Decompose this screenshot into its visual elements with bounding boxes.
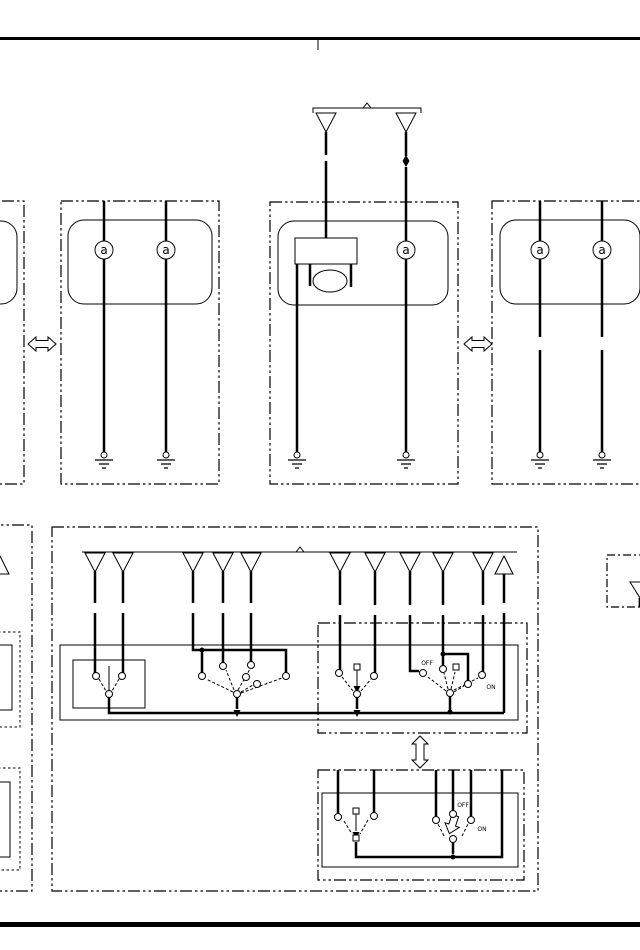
switch-contact: [220, 663, 227, 670]
switch-contact: [371, 673, 378, 680]
bulb-icon: [397, 241, 415, 259]
harness-direction-arrow-icon: [28, 337, 56, 351]
inner-switch-box-upper: [318, 623, 527, 733]
left-partial-lamp-body: [0, 221, 17, 304]
ground-icon: [288, 452, 306, 468]
connector-pin-icon: [330, 553, 350, 572]
power-feed-bracket: [313, 103, 421, 113]
upper-switch-on-label: ON: [486, 684, 495, 691]
connector-pin-icon: [213, 553, 233, 572]
bracket-line: [313, 103, 421, 113]
connector-pin-icon: [241, 553, 261, 572]
connector-pin-icon: [183, 553, 203, 572]
switch-contact: [106, 691, 113, 698]
switch-contact: [119, 673, 126, 680]
switch-contact-square: [354, 664, 360, 670]
switch-contact: [371, 813, 378, 820]
switch-contact: [248, 662, 255, 669]
switch-contact: [354, 691, 361, 698]
top-border-line: [0, 37, 640, 40]
ground-icon: [531, 452, 549, 468]
connector-pin-icon: [433, 553, 453, 572]
switch-levers: [109, 666, 357, 831]
upper-switch-off-label: OFF: [421, 660, 433, 667]
lower-left-partial-box: [0, 525, 32, 891]
switch-contact: [465, 681, 472, 688]
switch-contact: [450, 811, 457, 818]
connector-pin-icon: [113, 553, 133, 572]
lower-wires: [95, 571, 640, 857]
wire-junction-dot: [441, 652, 446, 657]
switch-contact: [234, 691, 241, 698]
page-borders: [0, 37, 640, 927]
ground-icon: [397, 452, 415, 468]
bulb-icon: [593, 241, 611, 259]
combination-switch-outer-box: [52, 527, 538, 891]
bulb-icon: [95, 241, 113, 259]
switch-contact: [243, 674, 250, 681]
bulb-holder-block: [295, 238, 357, 264]
switch-contact: [450, 836, 457, 843]
switch-contact-square: [453, 664, 459, 670]
bulb-icon: [531, 241, 549, 259]
right-partial-connector-box: [607, 555, 640, 607]
inner-switch-box-lower: [318, 770, 524, 880]
left-partial-lamp-box: [0, 201, 24, 484]
right-lamp-unit-body: [500, 220, 640, 304]
left-lamp-unit-box: [61, 201, 219, 484]
switch-contact: [254, 681, 261, 688]
right-lamp-unit-box: [492, 201, 640, 484]
connector-pin-partial-icon: [630, 582, 640, 607]
switch-contact-square: [353, 808, 359, 814]
connector-pin-icon: [473, 553, 493, 572]
splice-point-icon: [403, 155, 410, 167]
switch-contact: [336, 670, 343, 677]
wire-junction-dot: [451, 855, 456, 860]
switch-contact: [93, 673, 100, 680]
lower-switch-on-label: ON: [477, 826, 486, 833]
switch-contact: [283, 673, 290, 680]
connector-pin-up-icon: [0, 556, 9, 574]
switch-contact-square: [353, 835, 359, 841]
symbol-layer: [0, 113, 640, 860]
switch-contact: [440, 666, 447, 673]
harness-direction-arrow-icon: [464, 337, 492, 351]
switch-contact: [447, 690, 454, 697]
connector-pin-up-icon: [495, 556, 513, 574]
switch-contact: [433, 817, 440, 824]
center-lamp-unit-body: [278, 221, 448, 305]
connector-pin-icon: [365, 553, 385, 572]
wiring-diagram-page: a: [0, 0, 640, 950]
left-partial-switch-box-upper: [0, 632, 20, 727]
connector-pin-icon: [316, 113, 336, 132]
wire-junction-dot: [448, 710, 453, 715]
switch-contact: [335, 814, 342, 821]
connector-pin-icon: [400, 553, 420, 572]
headlamp-bulb-oval: [313, 270, 347, 292]
connector-pin-icon: [396, 113, 416, 132]
wiring-diagram-canvas: a: [0, 0, 640, 950]
bottom-border-line: [0, 922, 640, 927]
switch-contact: [420, 670, 427, 677]
ground-icon: [157, 452, 175, 468]
upper-wires: [104, 132, 602, 452]
left-lamp-unit-body: [68, 220, 212, 304]
ground-icon: [95, 452, 113, 468]
switch-contact: [199, 673, 206, 680]
lower-switch-off-label: OFF: [457, 802, 469, 809]
switch-contact: [468, 817, 475, 824]
harness-direction-arrow-icon: [412, 736, 428, 768]
bulb-icon: [157, 241, 175, 259]
ground-icon: [593, 452, 611, 468]
left-partial-switch-body-lower: [0, 782, 10, 857]
left-partial-switch-body-upper: [0, 645, 12, 710]
pin-row-rail: [82, 547, 517, 552]
switch-contact: [479, 672, 486, 679]
wire-junction-dot: [200, 648, 205, 653]
connector-pin-icon: [85, 553, 105, 572]
